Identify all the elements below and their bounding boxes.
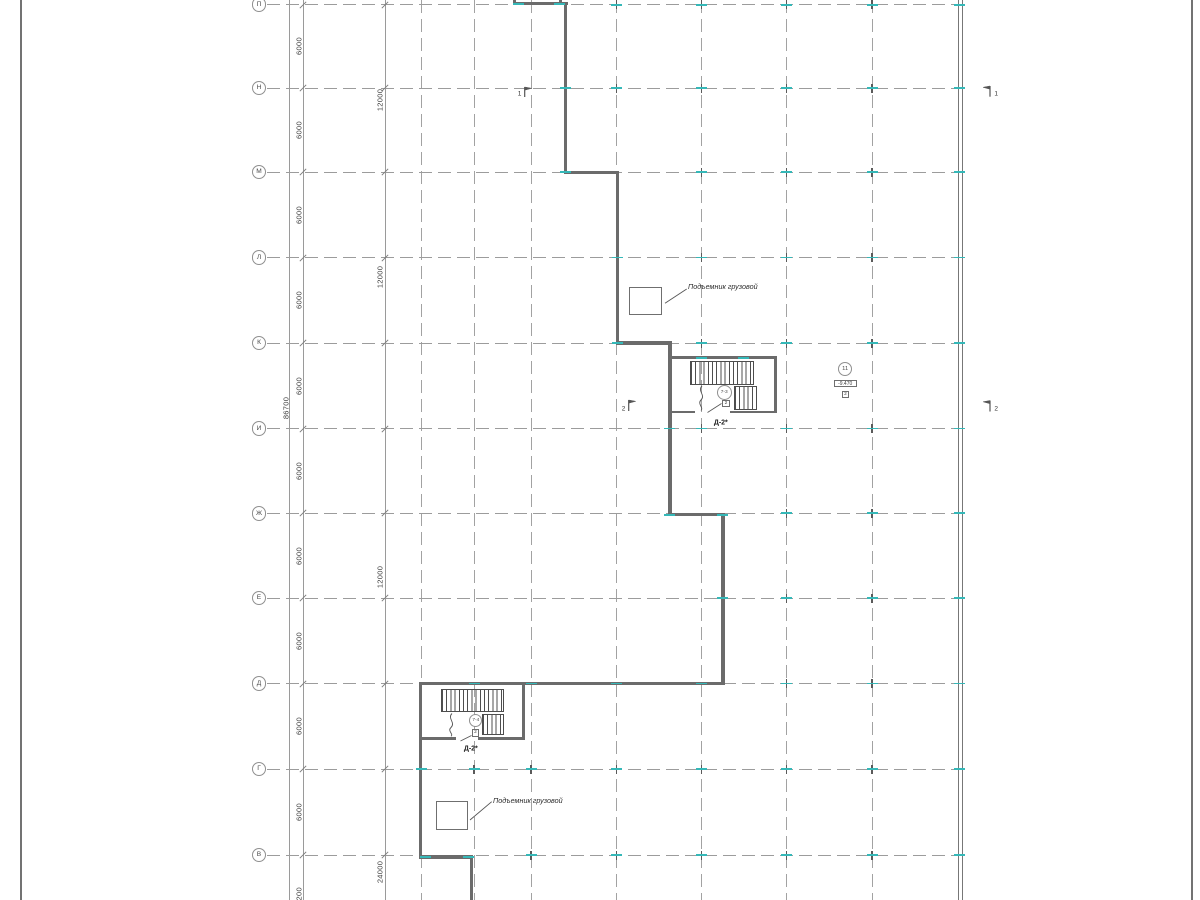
axis-intersection-tick — [954, 257, 965, 259]
wall-segment — [730, 411, 777, 414]
axis-intersection-tick — [781, 512, 792, 514]
axis-intersection-tick — [696, 342, 707, 344]
axis-intersection-tick — [611, 854, 622, 856]
axis-intersection-tick — [867, 854, 878, 856]
axis-row-bubble: Ж — [252, 506, 267, 521]
axis-intersection-tick — [696, 4, 707, 6]
stair-flight — [690, 361, 754, 386]
axis-intersection-tick — [781, 683, 792, 685]
wall-segment — [419, 737, 456, 740]
dimension-text: 6000 — [294, 462, 303, 480]
axis-intersection-tick — [954, 512, 965, 514]
axis-intersection-tick — [781, 171, 792, 173]
axis-intersection-tick — [954, 428, 965, 430]
wall-segment — [564, 171, 619, 174]
axis-intersection-tick — [781, 768, 792, 770]
wall-segment — [668, 356, 777, 359]
section-mark-flag — [629, 400, 636, 403]
elevation-box: -9.470 — [834, 380, 857, 387]
dimension-text: 6000 — [294, 803, 303, 821]
wall-segment — [559, 0, 562, 2]
axis-row-bubble: И — [252, 421, 267, 436]
axis-intersection-tick — [696, 428, 707, 430]
axis-intersection-tick — [469, 768, 480, 770]
axis-intersection-tick — [560, 87, 571, 89]
axis-intersection-tick — [867, 257, 878, 259]
axis-intersection-tick — [954, 854, 965, 856]
hoist-leader-line — [665, 289, 687, 303]
axis-intersection-tick — [954, 768, 965, 770]
axis-intersection-tick — [717, 514, 728, 516]
axis-intersection-tick — [954, 683, 965, 685]
axis-intersection-tick — [560, 171, 571, 173]
axis-intersection-tick — [611, 4, 622, 6]
axis-intersection-tick — [867, 683, 878, 685]
dimension-text: 6000 — [294, 121, 303, 139]
wall-segment — [668, 513, 725, 516]
axis-row-bubble: Е — [252, 591, 267, 606]
dimension-text: 86700 — [281, 397, 290, 419]
hoist-box — [629, 287, 662, 316]
axis-intersection-tick — [611, 683, 622, 685]
axis-intersection-tick — [696, 357, 707, 359]
axis-intersection-tick — [781, 597, 792, 599]
axis-intersection-tick — [463, 856, 474, 858]
axis-intersection-tick — [611, 768, 622, 770]
level-number-box: 2 — [842, 391, 850, 399]
axis-intersection-tick — [696, 87, 707, 89]
axis-intersection-tick — [526, 768, 537, 770]
axis-intersection-tick — [867, 597, 878, 599]
page-border — [1191, 0, 1193, 900]
stair-handrail — [450, 714, 453, 737]
axis-intersection-tick — [954, 597, 965, 599]
axis-intersection-tick — [867, 171, 878, 173]
dimension-text: 12000 — [376, 89, 385, 111]
stair-door-leader — [708, 404, 722, 413]
axis-row-bubble: М — [252, 165, 267, 180]
axis-intersection-tick — [612, 257, 623, 259]
stair-name-label: Д-2* — [714, 419, 728, 426]
dimension-text: 6000 — [294, 632, 303, 650]
stair-number-box: 2 — [472, 729, 479, 736]
axis-intersection-tick — [867, 512, 878, 514]
axis-intersection-tick — [526, 683, 537, 685]
wall-segment — [419, 682, 725, 685]
floor-plan-canvas: ПНМЛКИЖЕДГВ86700600060006000600060006000… — [0, 0, 1200, 900]
axis-intersection-tick — [696, 171, 707, 173]
axis-row-bubble: Г — [252, 762, 267, 777]
section-mark-flag — [983, 401, 990, 404]
dimension-text: 7200 — [294, 887, 303, 900]
section-mark-number: 1 — [994, 90, 998, 97]
wall-segment — [774, 356, 777, 413]
axis-intersection-tick — [867, 428, 878, 430]
section-mark-number: 2 — [622, 406, 626, 413]
stair-flight — [734, 386, 758, 410]
dimension-line — [289, 0, 290, 900]
dimension-text: 6000 — [294, 291, 303, 309]
stair-flight — [441, 689, 504, 713]
dimension-text: 6000 — [294, 717, 303, 735]
axis-intersection-tick — [867, 768, 878, 770]
axis-intersection-tick — [954, 87, 965, 89]
stair-name-label: Д-2* — [464, 745, 478, 752]
axis-intersection-tick — [420, 856, 431, 858]
section-mark-number: 2 — [994, 405, 998, 412]
axis-intersection-tick — [738, 357, 749, 359]
axis-intersection-tick — [867, 4, 878, 6]
hoist-box — [436, 801, 469, 830]
building-right-wall — [958, 0, 963, 900]
wall-segment — [668, 411, 695, 414]
axis-intersection-tick — [781, 257, 792, 259]
axis-intersection-tick — [781, 4, 792, 6]
axis-intersection-tick — [664, 428, 675, 430]
stair-number-box: 2 — [722, 400, 729, 407]
axis-intersection-tick — [781, 428, 792, 430]
axis-row-bubble: К — [252, 336, 267, 351]
axis-intersection-tick — [513, 3, 524, 5]
hoist-label: Подъемник грузовой — [493, 796, 563, 805]
axis-intersection-tick — [781, 854, 792, 856]
axis-intersection-tick — [954, 171, 965, 173]
axis-row-line — [267, 598, 955, 599]
axis-intersection-tick — [416, 768, 427, 770]
dimension-text: 6000 — [294, 377, 303, 395]
axis-intersection-tick — [954, 4, 965, 6]
axis-row-line — [267, 428, 955, 429]
axis-intersection-tick — [526, 854, 537, 856]
axis-intersection-tick — [954, 342, 965, 344]
axis-intersection-tick — [554, 3, 565, 5]
level-bubble: 11 — [838, 362, 852, 376]
annotation-overlay — [0, 0, 1200, 900]
wall-segment — [513, 0, 516, 2]
dimension-text: 6000 — [294, 37, 303, 55]
axis-intersection-tick — [611, 87, 622, 89]
axis-intersection-tick — [696, 768, 707, 770]
dimension-text: 12000 — [376, 266, 385, 288]
wall-segment — [470, 855, 473, 900]
dimension-text: 24000 — [376, 860, 385, 882]
section-mark-number: 1 — [518, 91, 522, 98]
axis-row-bubble: Д — [252, 676, 267, 691]
hoist-label: Подъемник грузовой — [688, 282, 758, 291]
wall-segment — [721, 513, 724, 685]
axis-intersection-tick — [664, 514, 675, 516]
axis-intersection-tick — [696, 257, 707, 259]
wall-segment — [616, 341, 672, 344]
wall-segment — [419, 682, 422, 859]
axis-intersection-tick — [781, 87, 792, 89]
page-border — [20, 0, 22, 900]
axis-intersection-tick — [612, 342, 623, 344]
stair-door-leader — [461, 736, 472, 742]
section-mark-flag — [983, 86, 990, 89]
axis-row-bubble: Л — [252, 250, 267, 265]
wall-segment — [522, 685, 525, 740]
axis-intersection-tick — [696, 854, 707, 856]
axis-intersection-tick — [696, 683, 707, 685]
axis-row-bubble: В — [252, 848, 267, 863]
axis-intersection-tick — [867, 342, 878, 344]
dimension-text: 12000 — [376, 566, 385, 588]
axis-row-bubble: Н — [252, 81, 267, 96]
dimension-line — [385, 0, 386, 900]
stair-landing-line — [441, 711, 504, 712]
axis-row-line — [267, 513, 955, 514]
axis-row-bubble: П — [252, 0, 267, 12]
dimension-text: 6000 — [294, 206, 303, 224]
dimension-text: 6000 — [294, 547, 303, 565]
axis-intersection-tick — [469, 683, 480, 685]
stair-type-bubble: 7-4 — [469, 714, 482, 727]
stair-type-bubble: 7-3 — [717, 385, 732, 400]
axis-intersection-tick — [717, 597, 728, 599]
stair-flight — [482, 714, 505, 735]
wall-segment — [478, 737, 525, 740]
axis-intersection-tick — [867, 87, 878, 89]
axis-intersection-tick — [781, 342, 792, 344]
